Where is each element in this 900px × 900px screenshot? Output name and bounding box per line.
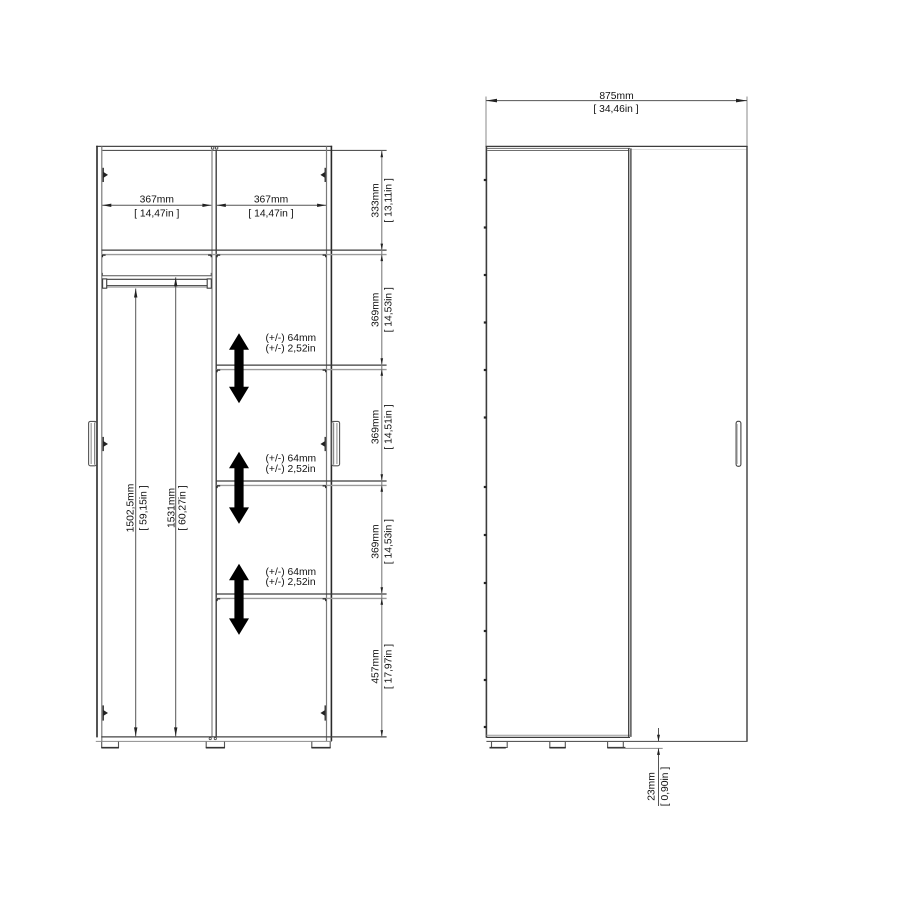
svg-text:1502,5mm: 1502,5mm bbox=[125, 484, 136, 533]
svg-text:369mm: 369mm bbox=[371, 293, 382, 327]
svg-text:(+/-) 64mm: (+/-) 64mm bbox=[266, 567, 317, 578]
svg-text:[ 14,53in ]: [ 14,53in ] bbox=[384, 287, 395, 332]
svg-text:23mm: 23mm bbox=[647, 772, 658, 801]
svg-text:367mm: 367mm bbox=[254, 195, 288, 206]
svg-text:[ 13,11in ]: [ 13,11in ] bbox=[384, 178, 395, 223]
svg-text:1531mm: 1531mm bbox=[167, 488, 178, 528]
svg-text:367mm: 367mm bbox=[140, 195, 174, 206]
svg-text:[ 14,47in ]: [ 14,47in ] bbox=[134, 208, 179, 219]
svg-text:(+/-) 64mm: (+/-) 64mm bbox=[266, 333, 317, 344]
svg-text:875mm: 875mm bbox=[599, 91, 633, 102]
svg-text:[ 34,46in ]: [ 34,46in ] bbox=[593, 104, 638, 115]
svg-text:(+/-) 2,52in: (+/-) 2,52in bbox=[266, 464, 316, 475]
svg-text:[ 0,90in ]: [ 0,90in ] bbox=[660, 767, 671, 807]
svg-text:(+/-) 64mm: (+/-) 64mm bbox=[266, 454, 317, 465]
svg-text:(+/-) 2,52in: (+/-) 2,52in bbox=[266, 577, 316, 588]
svg-text:[ 14,51in ]: [ 14,51in ] bbox=[384, 404, 395, 449]
svg-text:369mm: 369mm bbox=[371, 524, 382, 558]
svg-text:[ 60,27in ]: [ 60,27in ] bbox=[178, 485, 189, 530]
svg-text:369mm: 369mm bbox=[371, 410, 382, 444]
svg-text:[ 17,97in ]: [ 17,97in ] bbox=[384, 644, 395, 689]
svg-text:457mm: 457mm bbox=[371, 649, 382, 683]
svg-text:[ 14,53in ]: [ 14,53in ] bbox=[384, 519, 395, 564]
svg-text:[ 59,15in ]: [ 59,15in ] bbox=[138, 485, 149, 530]
svg-text:(+/-) 2,52in: (+/-) 2,52in bbox=[266, 343, 316, 354]
svg-text:[ 14,47in ]: [ 14,47in ] bbox=[248, 208, 293, 219]
svg-text:333mm: 333mm bbox=[371, 183, 382, 217]
